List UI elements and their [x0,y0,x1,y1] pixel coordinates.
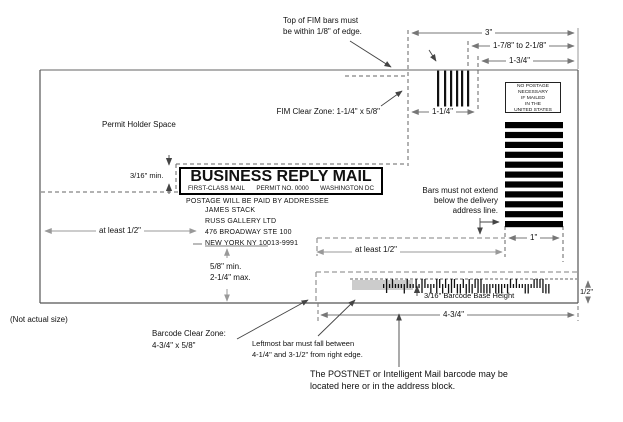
dim-3-16-min: 3/16" min. [130,171,164,182]
dim-3in: 3" [482,28,495,39]
address-line: 476 BROADWAY STE 100 [205,227,298,238]
barcode-base-height-label: 3/16" Barcode Base Height [424,291,514,302]
address-line: JAMES STACK [205,205,298,216]
business-reply-mail-box: BUSINESS REPLY MAIL FIRST-CLASS MAIL PER… [179,167,383,195]
dim-1-3-4: 1-3/4" [506,56,533,67]
dim-at-least-half-left: at least 1/2" [96,226,144,237]
barcode-clear-zone-label: Barcode Clear Zone: 4-3/4" x 5/8" [152,328,226,351]
brm-title: BUSINESS REPLY MAIL [181,169,381,185]
dim-1-1-4: 1-1/4" [429,107,456,118]
address-line: NEW YORK NY 10013-9991 [205,238,298,249]
brm-permit-no: PERMIT NO. 0000 [256,185,308,192]
permit-holder-space-label: Permit Holder Space [102,120,176,131]
dim-1in: 1" [527,233,540,244]
no-postage-endorsement-box: NO POSTAGE NECESSARY IF MAILED IN THE UN… [505,82,561,113]
brm-mail-class: FIRST-CLASS MAIL [188,185,245,192]
dim-4-3-4: 4-3/4" [440,310,467,321]
dim-at-least-half-mid: at least 1/2" [352,245,400,256]
dim-address-clearance: 5/8" min. 2-1/4" max. [210,261,251,283]
dim-half-inch: 1/2" [580,287,593,298]
brm-envelope-diagram: Top of FIM bars must be within 1/8" of e… [0,0,623,422]
top-fim-note: Top of FIM bars must be within 1/8" of e… [283,15,362,37]
postnet-location-note: The POSTNET or Intelligent Mail barcode … [310,369,508,392]
dim-fim-range: 1-7/8" to 2-1/8" [490,41,549,52]
not-actual-size-note: (Not actual size) [10,315,68,326]
sample-address-block: JAMES STACK RUSS GALLERY LTD 476 BROADWA… [205,205,298,249]
bars-note: Bars must not extend below the delivery … [394,186,498,217]
brm-city: WASHINGTON DC [320,185,374,192]
fim-clear-zone-label: FIM Clear Zone: 1-1/4" x 5/8" [256,107,380,118]
brm-subline: FIRST-CLASS MAIL PERMIT NO. 0000 WASHING… [181,185,381,192]
address-line: RUSS GALLERY LTD [205,216,298,227]
leftmost-bar-note: Leftmost bar must fall between 4-1/4" an… [252,339,363,360]
